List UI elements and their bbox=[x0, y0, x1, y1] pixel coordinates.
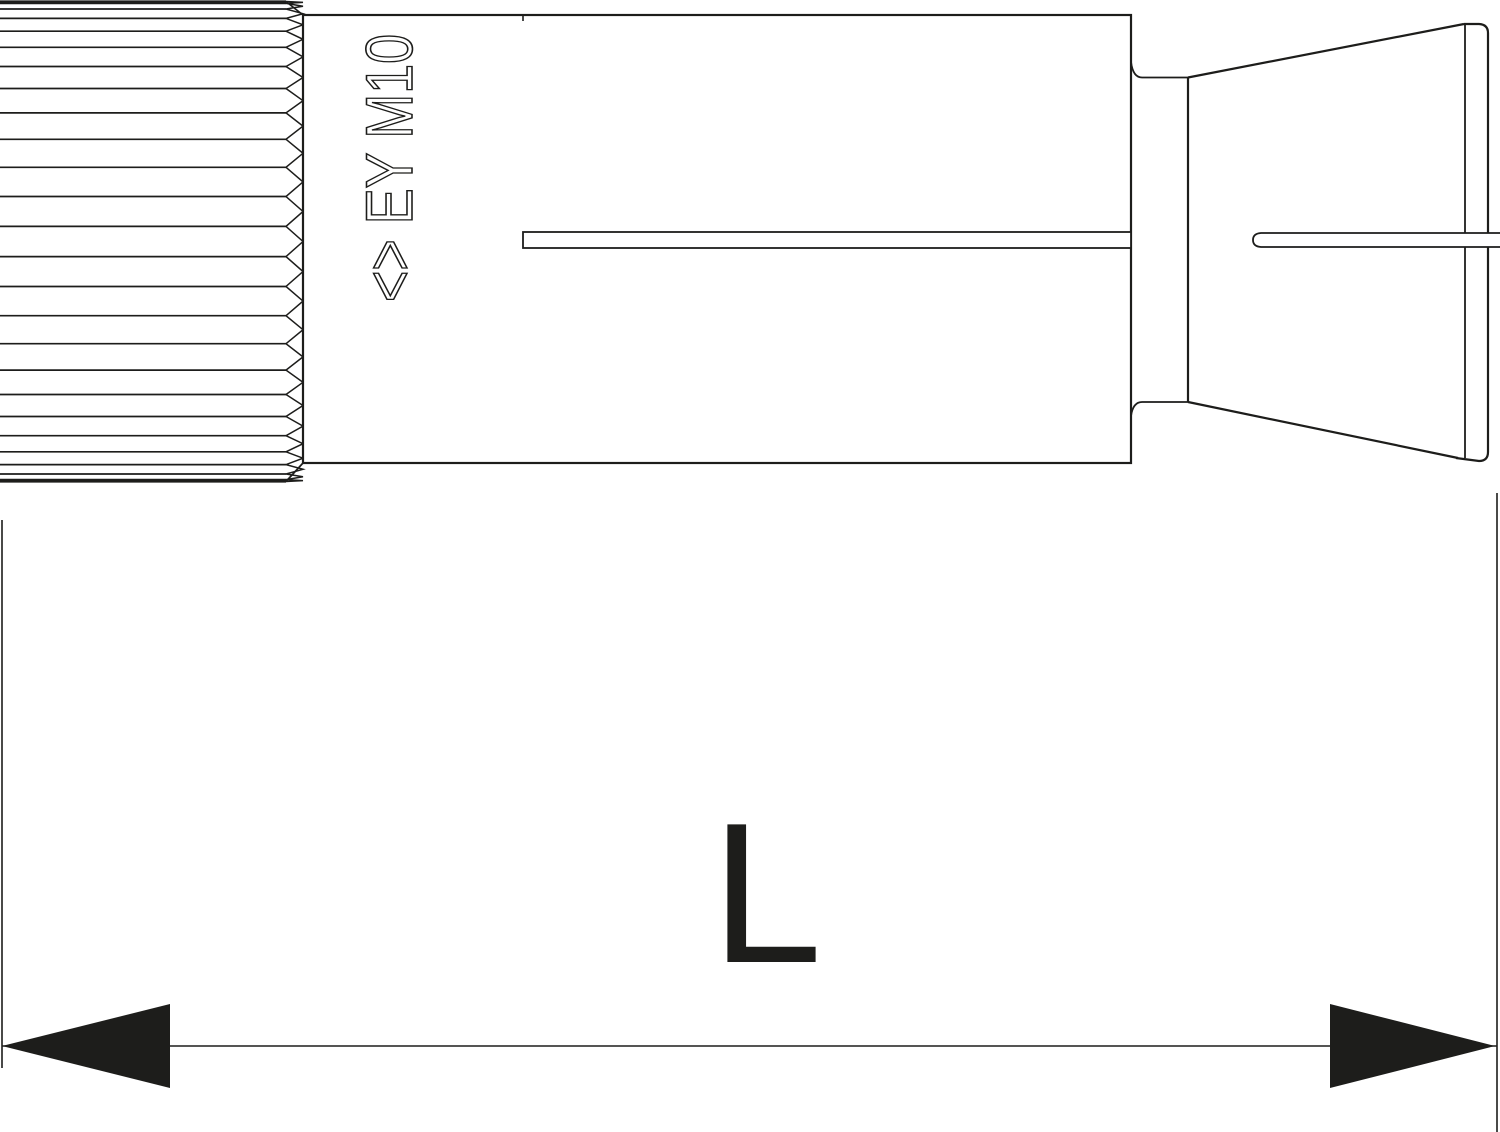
dimension-annotation: L bbox=[2, 493, 1497, 1132]
cone-bottom-edge bbox=[1188, 402, 1458, 458]
neck-top-edge bbox=[1131, 62, 1188, 78]
dimension-arrow-left bbox=[2, 1004, 170, 1088]
knurl-sawtooth-edge bbox=[286, 2, 303, 482]
dimension-arrow-right bbox=[1330, 1004, 1495, 1088]
technical-drawing-page: <> EY M10 L bbox=[0, 0, 1500, 1132]
anchor-technical-drawing: <> EY M10 L bbox=[0, 0, 1500, 1132]
knurled-flange bbox=[0, 2, 303, 482]
dimension-label: L bbox=[711, 782, 822, 1005]
cone-expansion-slot bbox=[1253, 233, 1500, 247]
cone-top-edge bbox=[1188, 24, 1464, 78]
neck-bottom-edge bbox=[1131, 402, 1188, 416]
marking-text: <> EY M10 bbox=[352, 34, 426, 302]
body-expansion-slot bbox=[523, 232, 1131, 248]
